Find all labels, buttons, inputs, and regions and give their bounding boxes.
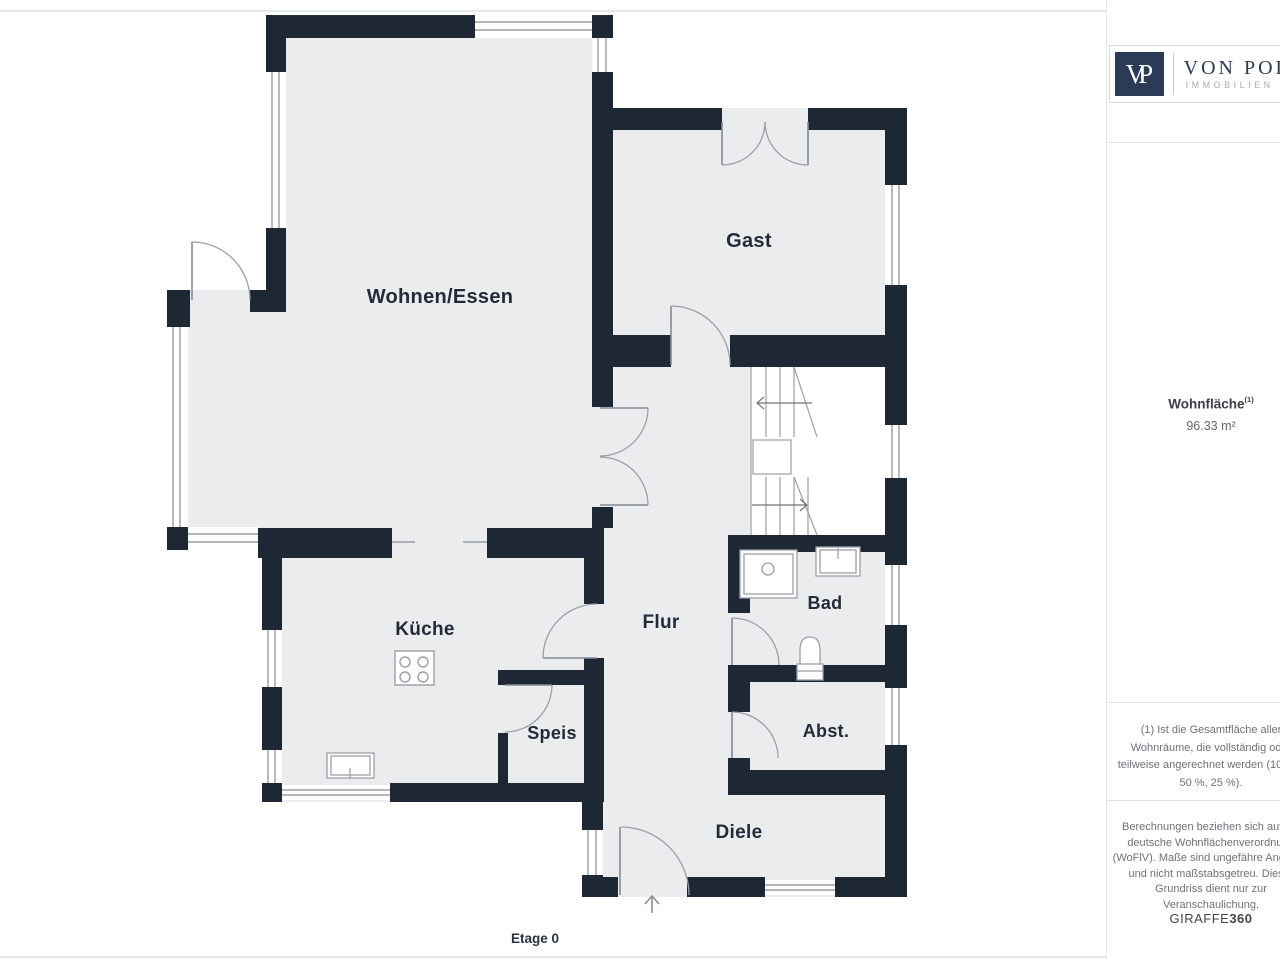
window: [885, 565, 907, 625]
vp-monogram-icon: VP: [1115, 52, 1164, 96]
window: [592, 38, 613, 72]
vonpoll-logo: VP VON POLL IMMOBILIEN: [1109, 45, 1280, 103]
shower: [740, 550, 797, 598]
sidebar-divider: [1107, 702, 1280, 703]
room-label-gast: Gast: [726, 230, 772, 252]
giraffe360-logo: GIRAFFE360: [1107, 911, 1280, 926]
footnote-text: (1) Ist die Gesamtfläche aller Wohnräume…: [1107, 722, 1280, 792]
living-area-block: Wohnfläche(1) 96.33 m²: [1107, 395, 1280, 433]
window: [282, 785, 390, 800]
room-label-speis: Speis: [527, 723, 577, 743]
window: [266, 72, 286, 228]
window: [188, 527, 258, 550]
room-label-bad: Bad: [808, 593, 843, 613]
living-area-label: Wohnfläche: [1168, 396, 1244, 411]
floor-level-label: Etage 0: [511, 931, 559, 946]
sidebar-divider: [1107, 800, 1280, 801]
brand-name: VON POLL: [1184, 57, 1280, 79]
stove: [395, 651, 434, 685]
living-area-footnote-marker: (1): [1245, 395, 1254, 404]
disclaimer-text: Berechnungen beziehen sich auf die deuts…: [1107, 820, 1280, 913]
window: [167, 327, 188, 527]
floor-plan-canvas: Wohnen/Essen Gast Küche Flur Bad Speis A…: [0, 0, 1107, 960]
logo-divider: [1173, 53, 1174, 95]
sidebar: VP VON POLL IMMOBILIEN Wohnfläche(1) 96.…: [1106, 0, 1280, 960]
brand-subtitle: IMMOBILIEN: [1186, 80, 1280, 91]
window: [262, 750, 282, 783]
window: [885, 185, 907, 285]
window: [582, 830, 603, 875]
room-label-wohnen-essen: Wohnen/Essen: [367, 286, 514, 308]
kitchen-sink: [327, 753, 374, 779]
room-label-flur: Flur: [642, 612, 679, 633]
living-area-value: 96.33 m²: [1107, 419, 1280, 433]
bathroom-sink: [816, 547, 860, 576]
giraffe360-suffix: 360: [1229, 911, 1252, 926]
room-label-abst: Abst.: [803, 721, 850, 741]
giraffe360-name: GIRAFFE: [1169, 911, 1229, 926]
sidebar-divider: [1107, 142, 1280, 143]
window: [885, 425, 907, 478]
room-label-kueche: Küche: [395, 619, 455, 640]
entry-arrow-icon: [645, 896, 659, 913]
window: [475, 15, 592, 38]
toilet: [797, 637, 823, 680]
window: [765, 880, 835, 895]
window: [262, 630, 282, 687]
vp-monogram-text: VP: [1126, 59, 1147, 90]
room-label-diele: Diele: [716, 822, 763, 843]
window: [885, 688, 907, 745]
